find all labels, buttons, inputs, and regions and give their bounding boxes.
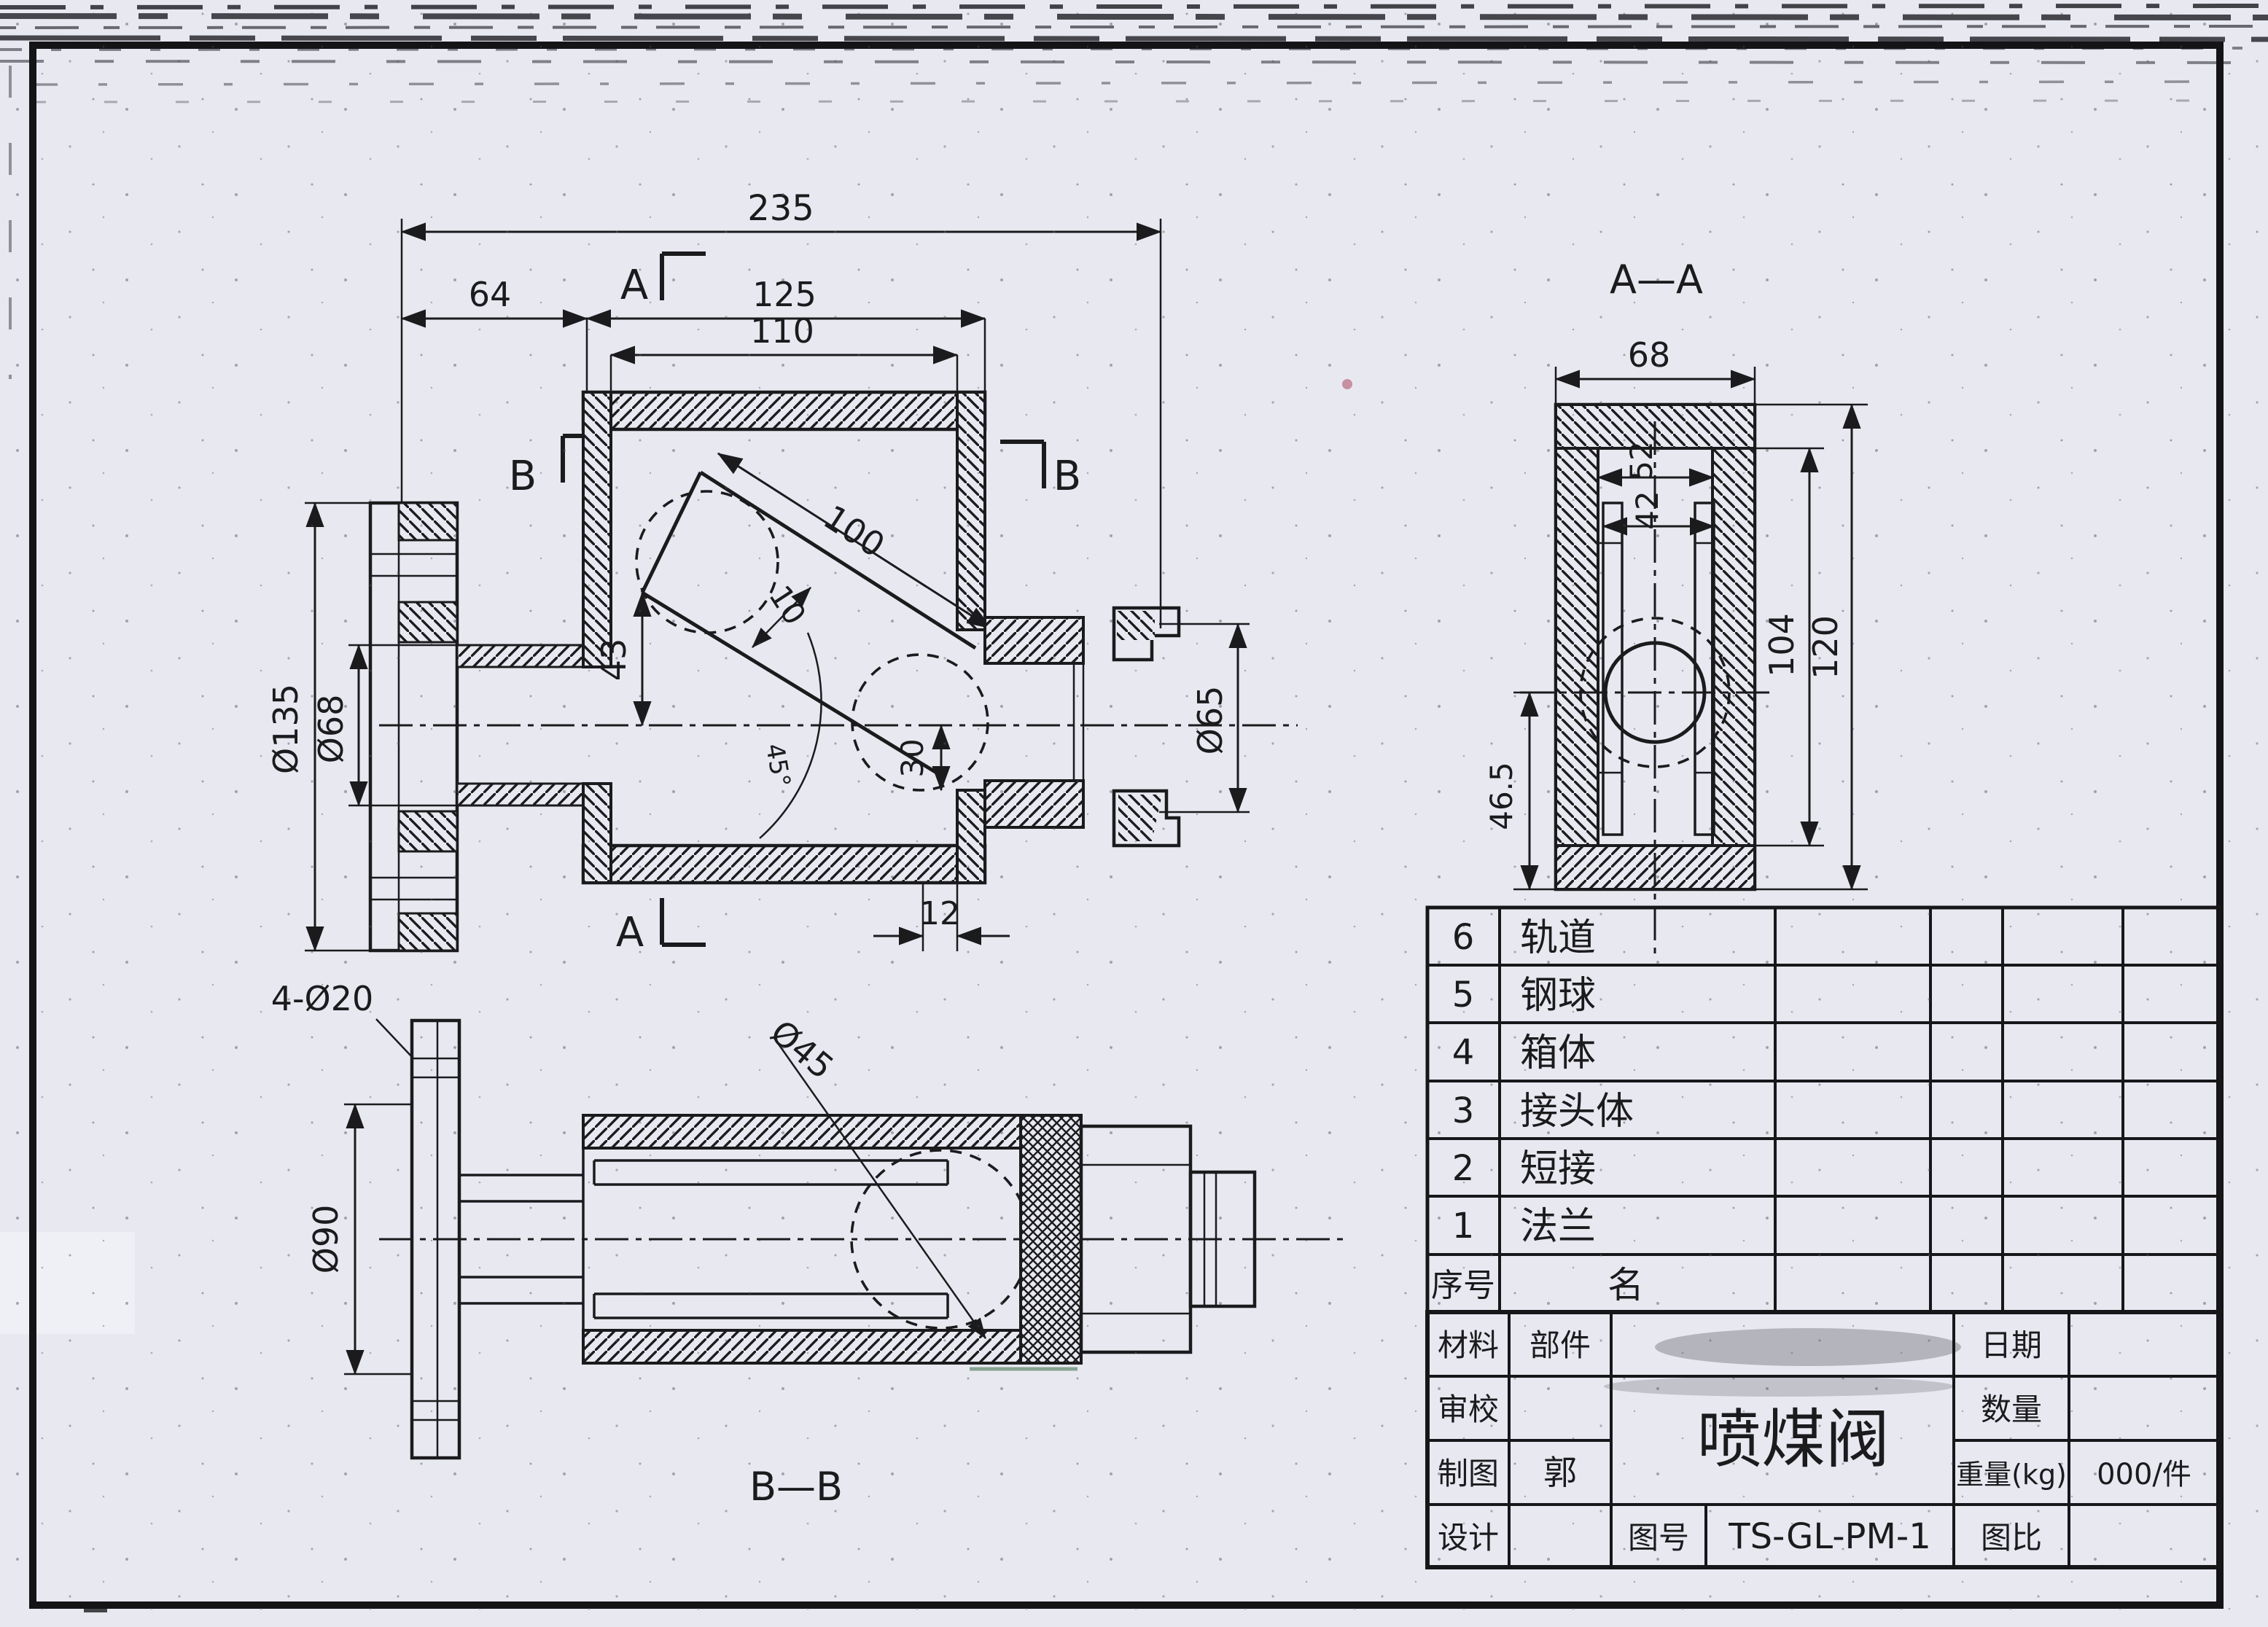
parts-row-1: 1 法兰 <box>1452 1205 1596 1249</box>
dim-65-label: Ø65 <box>1190 686 1230 755</box>
section-mark-b-right: B <box>1000 442 1081 500</box>
parts-row-6: 6 轨道 <box>1452 916 1596 960</box>
section-bb-title: B—B <box>749 1464 843 1510</box>
design-label: 设计 <box>1438 1520 1499 1556</box>
parts-row-5: 5 钢球 <box>1452 974 1596 1018</box>
dim-120-label: 120 <box>1806 615 1845 679</box>
svg-text:1: 1 <box>1452 1206 1475 1246</box>
scale-label: 图比 <box>1981 1520 2042 1556</box>
part-label: 部件 <box>1529 1327 1591 1363</box>
flange-hub-top <box>457 645 583 667</box>
weight-value: 000/件 <box>2097 1458 2191 1491</box>
dim-12-label: 12 <box>919 895 960 932</box>
dim-angle: 45° <box>760 633 822 838</box>
svg-text:轨道: 轨道 <box>1520 916 1596 960</box>
svg-text:序号: 序号 <box>1431 1267 1495 1304</box>
svg-text:2: 2 <box>1452 1148 1475 1189</box>
svg-text:法兰: 法兰 <box>1520 1205 1596 1249</box>
draft-name: 郭 <box>1543 1453 1577 1492</box>
svg-text:4: 4 <box>1452 1032 1475 1073</box>
svg-text:6: 6 <box>1452 917 1475 958</box>
weight-label: 重量(kg) <box>1956 1459 2067 1491</box>
dim-43-label: 43 <box>594 639 634 682</box>
dim-track-width: 10 <box>752 579 813 647</box>
parts-header-row: 序号 名 <box>1431 1264 1644 1306</box>
parts-row-4: 4 箱体 <box>1452 1031 1596 1075</box>
dim-angle-label: 45° <box>760 741 796 789</box>
body-bottom-wall <box>583 846 985 883</box>
dim-46-5: 46.5 <box>1484 692 1556 889</box>
svg-text:B: B <box>1053 453 1081 500</box>
dim-outlet: Ø65 <box>1159 624 1250 812</box>
flange-left <box>370 503 611 951</box>
dim-drop: 30 <box>895 725 941 790</box>
dim-125-label: 125 <box>752 275 817 314</box>
drawing-title: 喷煤阀 <box>1697 1402 1890 1477</box>
body-right-wall-upper <box>957 392 985 630</box>
section-mark-a-bottom: A <box>616 898 706 956</box>
dim-4x20-label: 4-Ø20 <box>271 979 374 1018</box>
parts-row-2: 2 短接 <box>1452 1147 1596 1191</box>
dim-90-label: Ø90 <box>306 1205 346 1274</box>
section-mark-a-top: A <box>620 254 706 309</box>
parts-table: 6 轨道 5 钢球 4 箱体 3 接头体 2 短接 1 法兰 序号 名 <box>1427 908 2220 1312</box>
front-view: 235 64 125 110 A A B <box>266 188 1298 956</box>
dim-235-label: 235 <box>747 188 814 229</box>
dim-ball-dia: Ø45 <box>763 1013 986 1338</box>
drawing-no-label: 图号 <box>1628 1520 1689 1556</box>
check-label: 审校 <box>1438 1392 1499 1427</box>
section-bb-view: 4-Ø20 Ø90 <box>271 979 1349 1510</box>
body-left-wall-lower <box>583 784 611 883</box>
svg-text:B: B <box>509 453 537 500</box>
dim-bolt-holes: 4-Ø20 <box>271 979 413 1058</box>
bb-top-wall <box>583 1115 1021 1148</box>
svg-text:A: A <box>620 262 648 309</box>
section-aa-title: A—A <box>1610 257 1703 303</box>
parts-row-3: 3 接头体 <box>1452 1090 1634 1134</box>
dim-42: 42 <box>1603 491 1714 529</box>
dim-42-label: 42 <box>1629 491 1665 529</box>
aa-left-wall <box>1556 448 1598 846</box>
bb-bottom-wall <box>583 1330 1021 1363</box>
body-top-wall <box>583 392 985 429</box>
drawing-no-value: TS-GL-PM-1 <box>1728 1516 1931 1557</box>
title-block: 材料 部件 日期 审校 数量 制图 郭 重量(kg) 000/件 设计 图号 T… <box>1427 1312 2220 1567</box>
flange-hub-bottom <box>457 784 583 805</box>
svg-text:3: 3 <box>1452 1090 1475 1131</box>
dim-10-label: 10 <box>762 579 813 631</box>
nipple <box>1114 608 1179 846</box>
draft-label: 制图 <box>1438 1456 1499 1491</box>
dim-64-label: 64 <box>469 275 512 314</box>
dim-68-label: 68 <box>1628 335 1671 375</box>
dim-track-length: 100 <box>718 453 991 628</box>
svg-text:名: 名 <box>1608 1264 1644 1306</box>
svg-text:钢球: 钢球 <box>1520 974 1596 1018</box>
dim-flange-od-label: Ø135 <box>266 684 305 774</box>
dim-104-label: 104 <box>1762 613 1801 677</box>
svg-text:5: 5 <box>1452 975 1475 1015</box>
dim-46-5-label: 46.5 <box>1484 762 1519 830</box>
dim-45-label: Ø45 <box>763 1013 841 1087</box>
aa-right-wall <box>1712 448 1755 846</box>
ball-track <box>636 472 988 790</box>
body-left-wall-upper <box>583 392 611 667</box>
qty-label: 数量 <box>1981 1392 2042 1427</box>
section-aa-view: A—A 68 52 42 <box>1484 257 1868 953</box>
dim-step-12: 12 <box>873 883 1010 951</box>
dim-30-label: 30 <box>895 738 930 777</box>
dim-hub-od-label: Ø68 <box>311 695 351 764</box>
material-label: 材料 <box>1438 1327 1499 1363</box>
svg-text:A: A <box>616 909 644 956</box>
date-label: 日期 <box>1981 1327 2042 1363</box>
joint-body <box>985 617 1083 827</box>
bb-joint-section <box>1021 1115 1081 1363</box>
drawing-sheet: 235 64 125 110 A A B <box>0 0 2268 1627</box>
dim-110-label: 110 <box>750 311 814 351</box>
dim-64: 64 <box>402 275 587 397</box>
svg-text:箱体: 箱体 <box>1520 1031 1596 1075</box>
valve-body <box>583 392 985 883</box>
svg-text:短接: 短接 <box>1520 1147 1596 1191</box>
dim-68: 68 <box>1556 335 1755 407</box>
svg-text:接头体: 接头体 <box>1520 1090 1634 1134</box>
body-right-wall-lower <box>957 790 985 883</box>
